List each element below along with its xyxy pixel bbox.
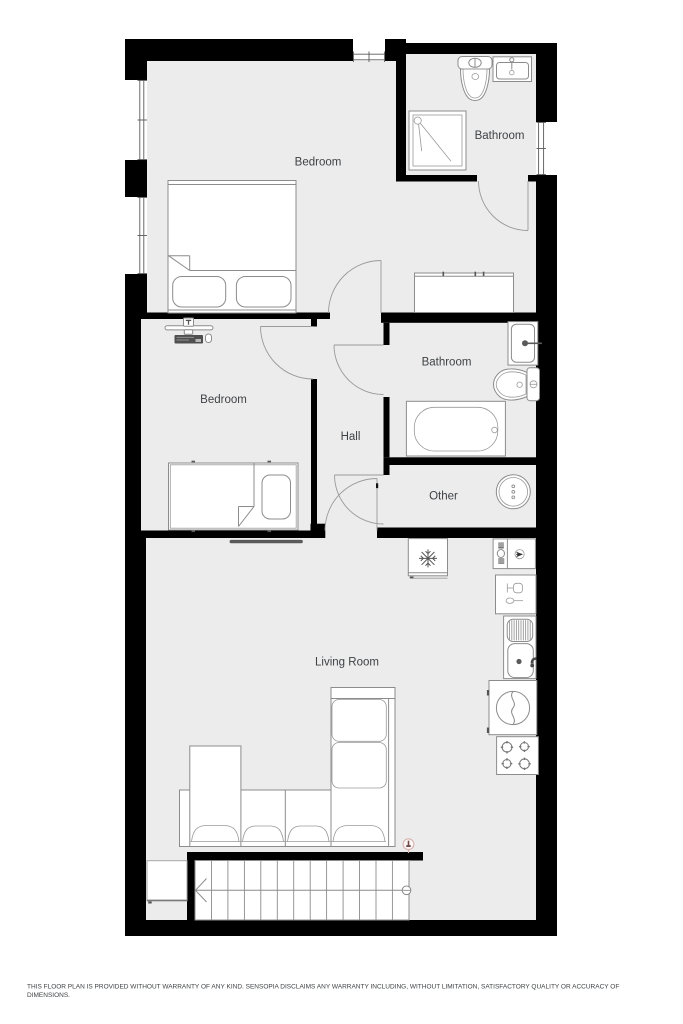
svg-text:Other: Other: [429, 491, 458, 503]
svg-text:THIS FLOOR PLAN IS PROVIDED WI: THIS FLOOR PLAN IS PROVIDED WITHOUT WARR…: [27, 984, 619, 991]
svg-text:Bathroom: Bathroom: [475, 130, 525, 142]
svg-text:Hall: Hall: [341, 431, 361, 443]
svg-text:Bedroom: Bedroom: [200, 394, 247, 406]
svg-text:Bathroom: Bathroom: [422, 356, 472, 368]
svg-text:Living Room: Living Room: [315, 657, 379, 669]
svg-text:DIMENSIONS.: DIMENSIONS.: [27, 992, 70, 999]
svg-text:Bedroom: Bedroom: [295, 156, 342, 168]
